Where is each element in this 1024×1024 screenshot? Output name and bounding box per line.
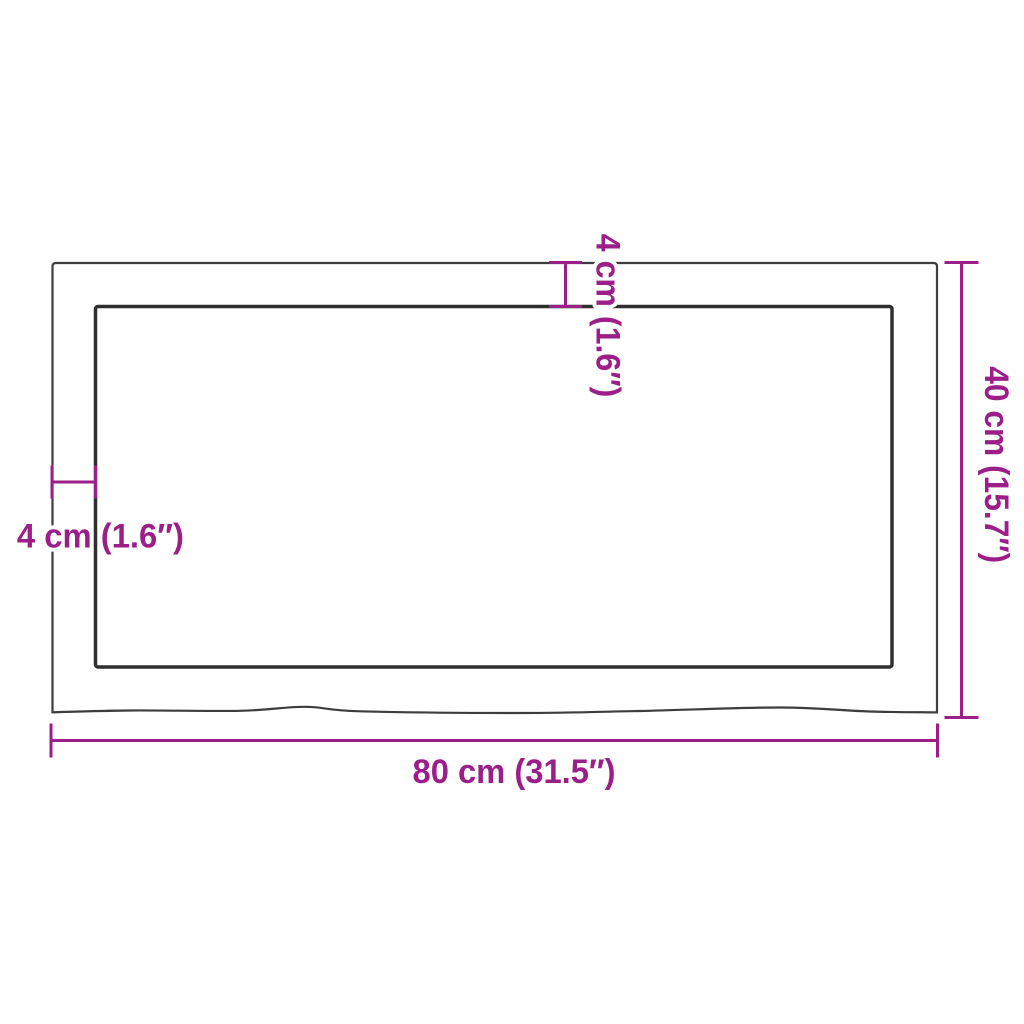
svg-text:80 cm (31.5″): 80 cm (31.5″) [413,753,616,791]
svg-text:40 cm (15.7″): 40 cm (15.7″) [977,366,1015,563]
svg-text:4 cm (1.6″): 4 cm (1.6″) [17,518,184,556]
svg-text:4 cm (1.6″): 4 cm (1.6″) [588,234,626,397]
